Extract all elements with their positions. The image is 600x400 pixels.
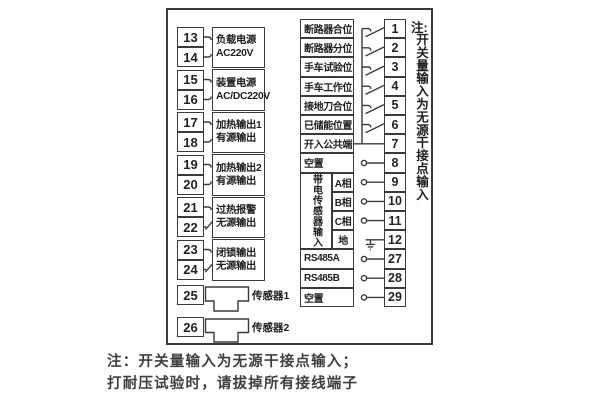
side-note-vertical: 开关量输入为无源干接点输入 bbox=[412, 33, 431, 213]
terminal-6: 6 bbox=[384, 115, 406, 134]
diagram-frame: 13 14 负载电源 AC220V 15 16 装置电源 AC/DC220V 1… bbox=[166, 8, 433, 345]
terminal-23: 23 bbox=[177, 240, 204, 260]
sensor-1-label: 传感器1 bbox=[252, 288, 289, 303]
label-line: AC220V bbox=[216, 47, 264, 60]
terminal-9: 9 bbox=[384, 173, 406, 192]
label-overheat-alarm: 过热报警 无源输出 bbox=[212, 197, 265, 239]
sensor-plug-shape bbox=[206, 319, 249, 342]
terminal-8: 8 bbox=[384, 153, 406, 172]
terminal-17: 17 bbox=[177, 112, 204, 132]
terminal-22: 22 bbox=[177, 217, 204, 237]
input-label-spare-8: 空置 bbox=[300, 153, 354, 172]
hook-connector bbox=[204, 80, 211, 100]
label-line: 无源输出 bbox=[216, 217, 264, 230]
terminal-29: 29 bbox=[384, 288, 406, 307]
input-label-spare-29: 空置 bbox=[300, 288, 354, 307]
terminal-wiring-diagram: 13 14 负载电源 AC220V 15 16 装置电源 AC/DC220V 1… bbox=[0, 0, 600, 400]
terminal-26: 26 bbox=[177, 317, 204, 337]
terminal-20: 20 bbox=[177, 175, 204, 195]
terminal-25: 25 bbox=[177, 285, 204, 305]
hook-connector bbox=[204, 37, 211, 57]
label-heater-output-2: 加热输出2 有源输出 bbox=[212, 154, 265, 196]
terminal-2: 2 bbox=[384, 38, 406, 57]
input-label-breaker-closed: 断路器合位 bbox=[300, 19, 354, 38]
terminal-10: 10 bbox=[384, 192, 406, 211]
label-line: AC/DC220V bbox=[216, 90, 264, 103]
plug-point bbox=[361, 180, 366, 185]
label-line: 闭锁输出 bbox=[216, 247, 264, 260]
label-line: 装置电源 bbox=[216, 77, 264, 90]
footer-note-line2: 打耐压试验时，请拔掉所有接线端子 bbox=[107, 372, 358, 393]
label-device-power: 装置电源 AC/DC220V bbox=[212, 69, 265, 111]
terminal-21: 21 bbox=[177, 197, 204, 217]
label-heater-output-1: 加热输出1 有源输出 bbox=[212, 112, 265, 154]
switch-symbol bbox=[362, 28, 384, 37]
terminal-7: 7 bbox=[384, 134, 406, 153]
input-label-common: 开入公共端 bbox=[300, 134, 354, 153]
sensor-2-label: 传感器2 bbox=[252, 320, 289, 335]
label-line: 过热报警 bbox=[216, 204, 264, 217]
terminal-15: 15 bbox=[177, 70, 204, 90]
label-line: 无源输出 bbox=[216, 260, 264, 273]
label-line: 加热输出1 bbox=[216, 119, 264, 132]
input-label-ground-knife: 接地刀合位 bbox=[300, 96, 354, 115]
label-line: 加热输出2 bbox=[216, 162, 264, 175]
sensor-plug-shape bbox=[206, 287, 249, 311]
hook-connector bbox=[204, 165, 211, 185]
label-line: 负载电源 bbox=[216, 34, 264, 47]
terminal-14: 14 bbox=[177, 47, 204, 67]
label-load-power: 负载电源 AC220V bbox=[212, 27, 265, 69]
plug-point bbox=[361, 218, 366, 223]
label-line: 有源输出 bbox=[216, 132, 264, 145]
ground-symbol bbox=[366, 240, 384, 250]
terminal-13: 13 bbox=[177, 27, 204, 47]
terminal-18: 18 bbox=[177, 132, 204, 152]
input-label-energy-stored: 已储能位置 bbox=[300, 115, 354, 134]
terminal-11: 11 bbox=[384, 211, 406, 230]
hook-connector bbox=[204, 122, 211, 142]
terminal-27: 27 bbox=[384, 249, 406, 268]
plug-point bbox=[361, 160, 366, 165]
rs485a-label: RS485A bbox=[300, 249, 354, 268]
terminal-5: 5 bbox=[384, 96, 406, 115]
switch-symbol bbox=[362, 47, 384, 56]
terminal-3: 3 bbox=[384, 57, 406, 76]
terminal-24: 24 bbox=[177, 260, 204, 280]
input-label-cart-test: 手车试验位 bbox=[300, 57, 354, 76]
switch-symbol bbox=[362, 85, 384, 94]
terminal-1: 1 bbox=[384, 19, 406, 38]
switch-symbol bbox=[362, 66, 384, 75]
terminal-19: 19 bbox=[177, 155, 204, 175]
switch-symbol bbox=[362, 124, 384, 133]
footer-note-line1: 注：开关量输入为无源干接点输入； bbox=[107, 350, 358, 371]
plug-point bbox=[361, 295, 366, 300]
plug-point bbox=[361, 199, 366, 204]
label-line: 有源输出 bbox=[216, 175, 264, 188]
plug-point bbox=[361, 256, 366, 261]
terminal-4: 4 bbox=[384, 77, 406, 96]
terminal-16: 16 bbox=[177, 90, 204, 110]
phase-a-label: A相 bbox=[332, 173, 354, 192]
phase-b-label: B相 bbox=[332, 192, 354, 211]
input-label-breaker-open: 断路器分位 bbox=[300, 38, 354, 57]
terminal-28: 28 bbox=[384, 269, 406, 288]
input-label-cart-work: 手车工作位 bbox=[300, 77, 354, 96]
label-lockout-output: 闭锁输出 无源输出 bbox=[212, 239, 265, 281]
switch-symbol bbox=[362, 105, 384, 114]
plug-point bbox=[361, 276, 366, 281]
rs485b-label: RS485B bbox=[300, 269, 354, 288]
terminal-12: 12 bbox=[384, 230, 406, 249]
live-sensor-input-group-label: 带电传感器输入 bbox=[300, 173, 332, 250]
phase-c-label: C相 bbox=[332, 211, 354, 230]
ground-label: 地 bbox=[332, 230, 354, 249]
